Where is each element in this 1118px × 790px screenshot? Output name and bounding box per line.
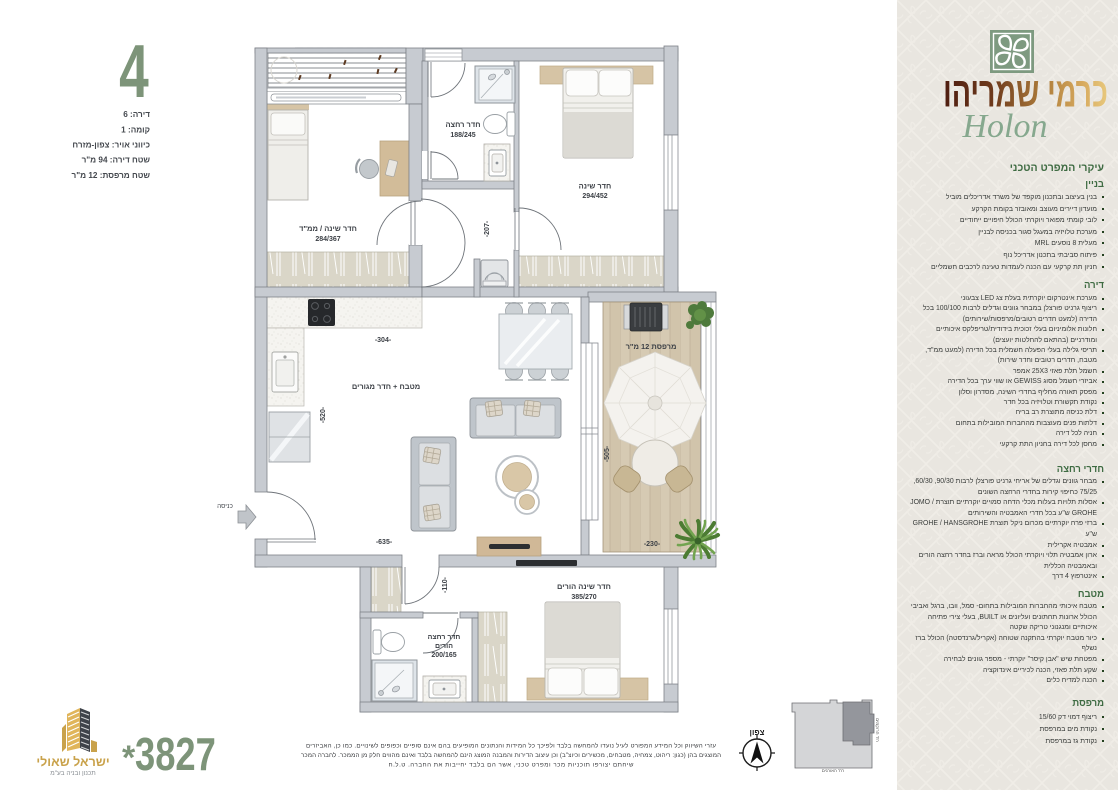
svg-text:-110-: -110- (442, 576, 449, 593)
svg-text:מרפסת 12 מ"ר: מרפסת 12 מ"ר (626, 342, 677, 351)
svg-text:שטח דירה: 94 מ"ר: שטח דירה: 94 מ"ר (82, 156, 151, 165)
svg-text:-304-: -304- (375, 337, 392, 344)
svg-text:כניסה: כניסה (217, 503, 233, 510)
svg-text:חדר שינה הורים: חדר שינה הורים (557, 582, 611, 591)
svg-text:284/367: 284/367 (315, 236, 340, 243)
svg-text:200/165: 200/165 (431, 652, 456, 659)
svg-text:חדר רחצה: חדר רחצה (445, 120, 480, 129)
svg-text:כיווני אויר: צפון-מזרח: כיווני אויר: צפון-מזרח (72, 141, 150, 150)
svg-text:385/270: 385/270 (571, 594, 596, 601)
svg-text:-635-: -635- (376, 539, 393, 546)
svg-text:Holon: Holon (962, 108, 1048, 145)
svg-text:294/452: 294/452 (582, 193, 607, 200)
svg-text:4: 4 (119, 29, 149, 113)
svg-text:שיחתם יצורפו תוכניות מכר ומפרט: שיחתם יצורפו תוכניות מכר ומפרט טכני, אשר… (389, 761, 634, 769)
svg-text:שטח מרפסת: 12 מ"ר: שטח מרפסת: 12 מ"ר (72, 171, 151, 180)
svg-text:המוצגים בהן (כגון: ריהוט, צמחי: המוצגים בהן (כגון: ריהוט, צמחיה, מטבחים,… (301, 751, 721, 759)
svg-text:עזרי השיווק וכל המידע המפורט ל: עזרי השיווק וכל המידע המפורט לעיל נועדו … (306, 742, 716, 750)
svg-text:חדר שינה / ממ"ד: חדר שינה / ממ"ד (299, 224, 357, 233)
svg-text:רח' האורגים: רח' האורגים (822, 768, 845, 773)
svg-text:ישראל שאולי: ישראל שאולי (36, 755, 109, 769)
svg-text:-505-: -505- (604, 445, 611, 462)
svg-text:דירה: 6: דירה: 6 (123, 110, 150, 119)
svg-text:הורים: הורים (435, 643, 453, 650)
svg-text:3827: 3827 (135, 728, 216, 780)
svg-text:חדר רחצה: חדר רחצה (428, 634, 461, 641)
svg-text:*: * (122, 739, 136, 777)
svg-text:188/245: 188/245 (450, 132, 475, 139)
svg-text:תכנון ובניה בע"מ: תכנון ובניה בע"מ (50, 770, 96, 777)
svg-text:חדר שינה: חדר שינה (579, 182, 612, 191)
svg-text:-230-: -230- (644, 541, 661, 548)
svg-text:קומה: 1: קומה: 1 (121, 125, 150, 134)
svg-text:רח' הרוקמים: רח' הרוקמים (875, 718, 880, 742)
svg-text:-207-: -207- (484, 220, 491, 237)
svg-text:-520-: -520- (320, 406, 327, 423)
svg-text:מטבח + חדר מגורים: מטבח + חדר מגורים (352, 382, 420, 391)
